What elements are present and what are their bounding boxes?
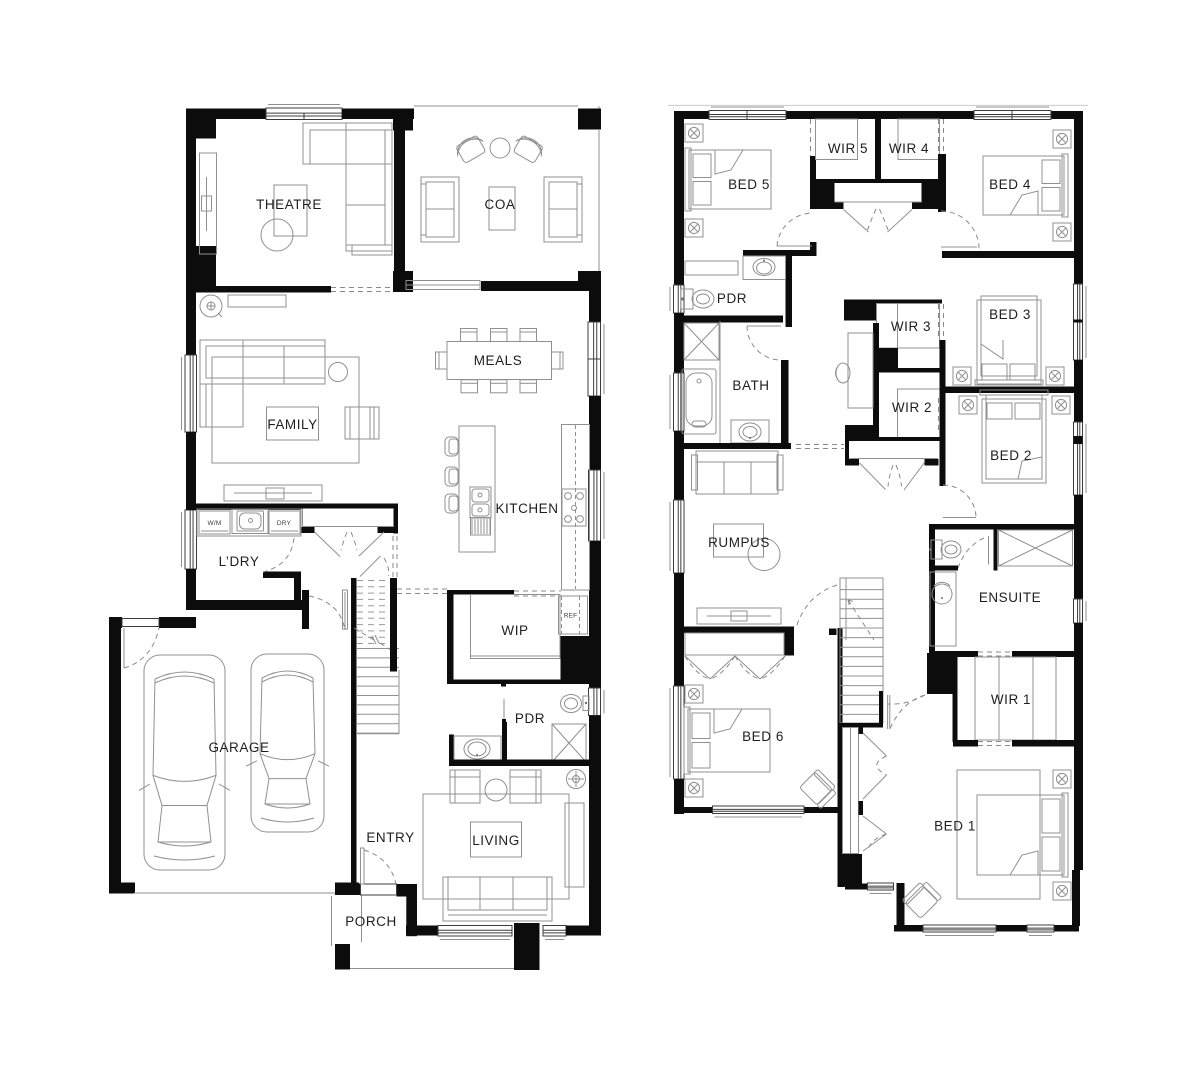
svg-text:BED 3: BED 3 (989, 307, 1031, 322)
svg-text:BED 6: BED 6 (742, 729, 784, 744)
svg-text:BATH: BATH (732, 378, 769, 393)
svg-text:RUMPUS: RUMPUS (708, 535, 770, 550)
svg-text:WIR 2: WIR 2 (892, 400, 932, 415)
svg-text:MEALS: MEALS (474, 353, 523, 368)
svg-text:PORCH: PORCH (345, 914, 397, 929)
svg-text:KITCHEN: KITCHEN (495, 501, 558, 516)
svg-text:LIVING: LIVING (472, 833, 520, 848)
svg-text:W/M: W/M (208, 520, 222, 527)
svg-text:WIP: WIP (501, 623, 528, 638)
svg-text:WIR 1: WIR 1 (991, 692, 1031, 707)
svg-text:BED 2: BED 2 (990, 448, 1032, 463)
svg-text:FAMILY: FAMILY (267, 417, 317, 432)
svg-text:REF: REF (564, 613, 578, 620)
svg-text:PDR: PDR (515, 711, 545, 726)
svg-text:COA: COA (485, 197, 516, 212)
svg-text:DRY: DRY (277, 520, 292, 527)
svg-text:GARAGE: GARAGE (208, 740, 269, 755)
svg-text:ENSUITE: ENSUITE (979, 590, 1041, 605)
svg-text:BED 5: BED 5 (728, 177, 770, 192)
svg-text:WIR 3: WIR 3 (891, 319, 931, 334)
svg-text:WIR 5: WIR 5 (828, 141, 868, 156)
svg-text:PDR: PDR (717, 291, 747, 306)
svg-text:ENTRY: ENTRY (366, 830, 414, 845)
svg-text:WIR 4: WIR 4 (889, 141, 929, 156)
svg-text:L’DRY: L’DRY (219, 554, 260, 569)
svg-text:BED 4: BED 4 (989, 177, 1031, 192)
svg-text:THEATRE: THEATRE (256, 197, 322, 212)
svg-text:BED 1: BED 1 (934, 819, 976, 834)
